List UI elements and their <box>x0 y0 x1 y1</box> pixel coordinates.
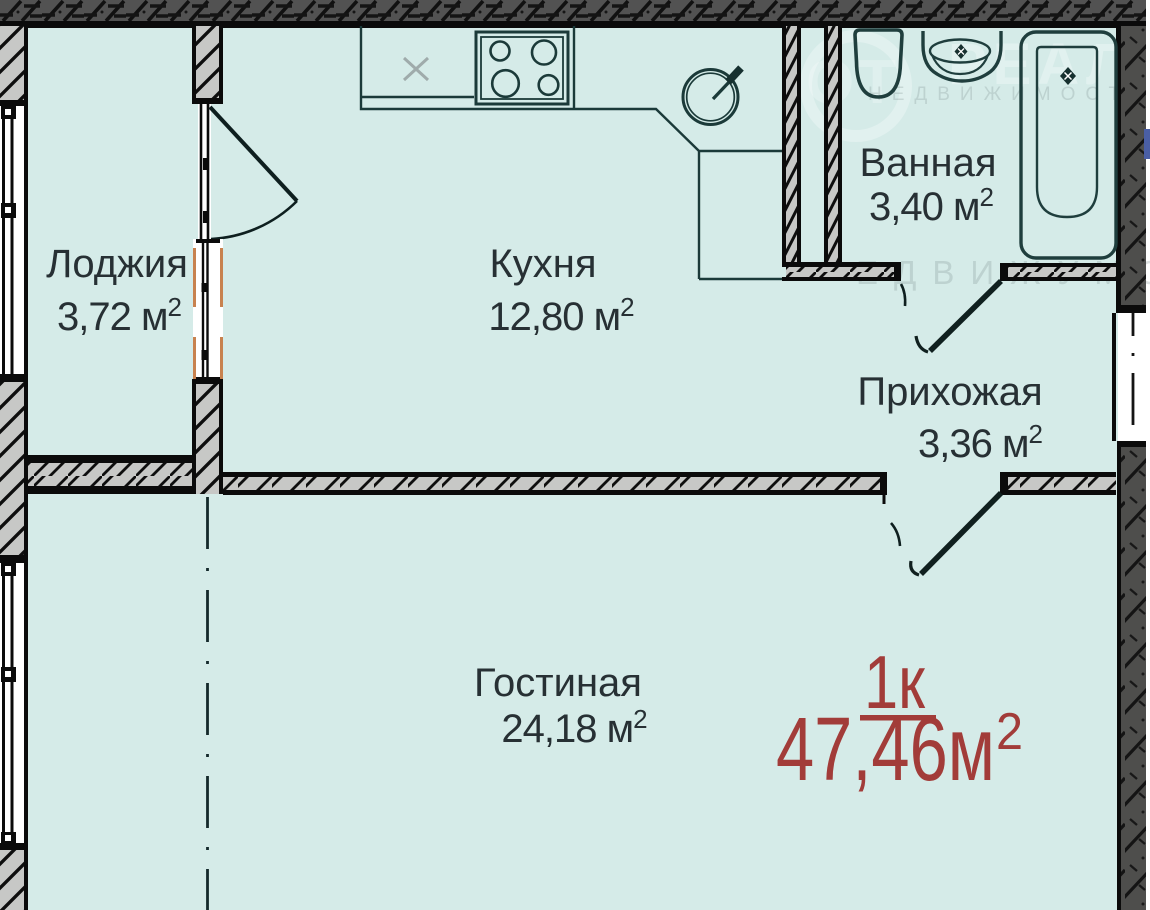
svg-text:ОТ: ОТ <box>806 48 900 117</box>
svg-text:3,36 м2: 3,36 м2 <box>918 419 1042 466</box>
svg-text:Гостиная: Гостиная <box>474 661 642 705</box>
svg-text:47,46м: 47,46м <box>776 700 995 800</box>
svg-text:Кухня: Кухня <box>489 242 596 286</box>
svg-text:24,18 м2: 24,18 м2 <box>501 704 647 751</box>
svg-text:3,72 м2: 3,72 м2 <box>57 292 181 339</box>
svg-text:Ванная: Ванная <box>859 141 996 185</box>
svg-text:Прихожая: Прихожая <box>857 370 1042 414</box>
svg-text:12,80 м2: 12,80 м2 <box>488 292 634 339</box>
svg-text:3,40 м2: 3,40 м2 <box>869 182 993 229</box>
svg-text:НЕДВИЖИМОСТЬ: НЕДВИЖИМОСТЬ <box>868 84 1150 105</box>
svg-text:2: 2 <box>996 703 1023 761</box>
svg-text:Лоджия: Лоджия <box>46 242 188 286</box>
